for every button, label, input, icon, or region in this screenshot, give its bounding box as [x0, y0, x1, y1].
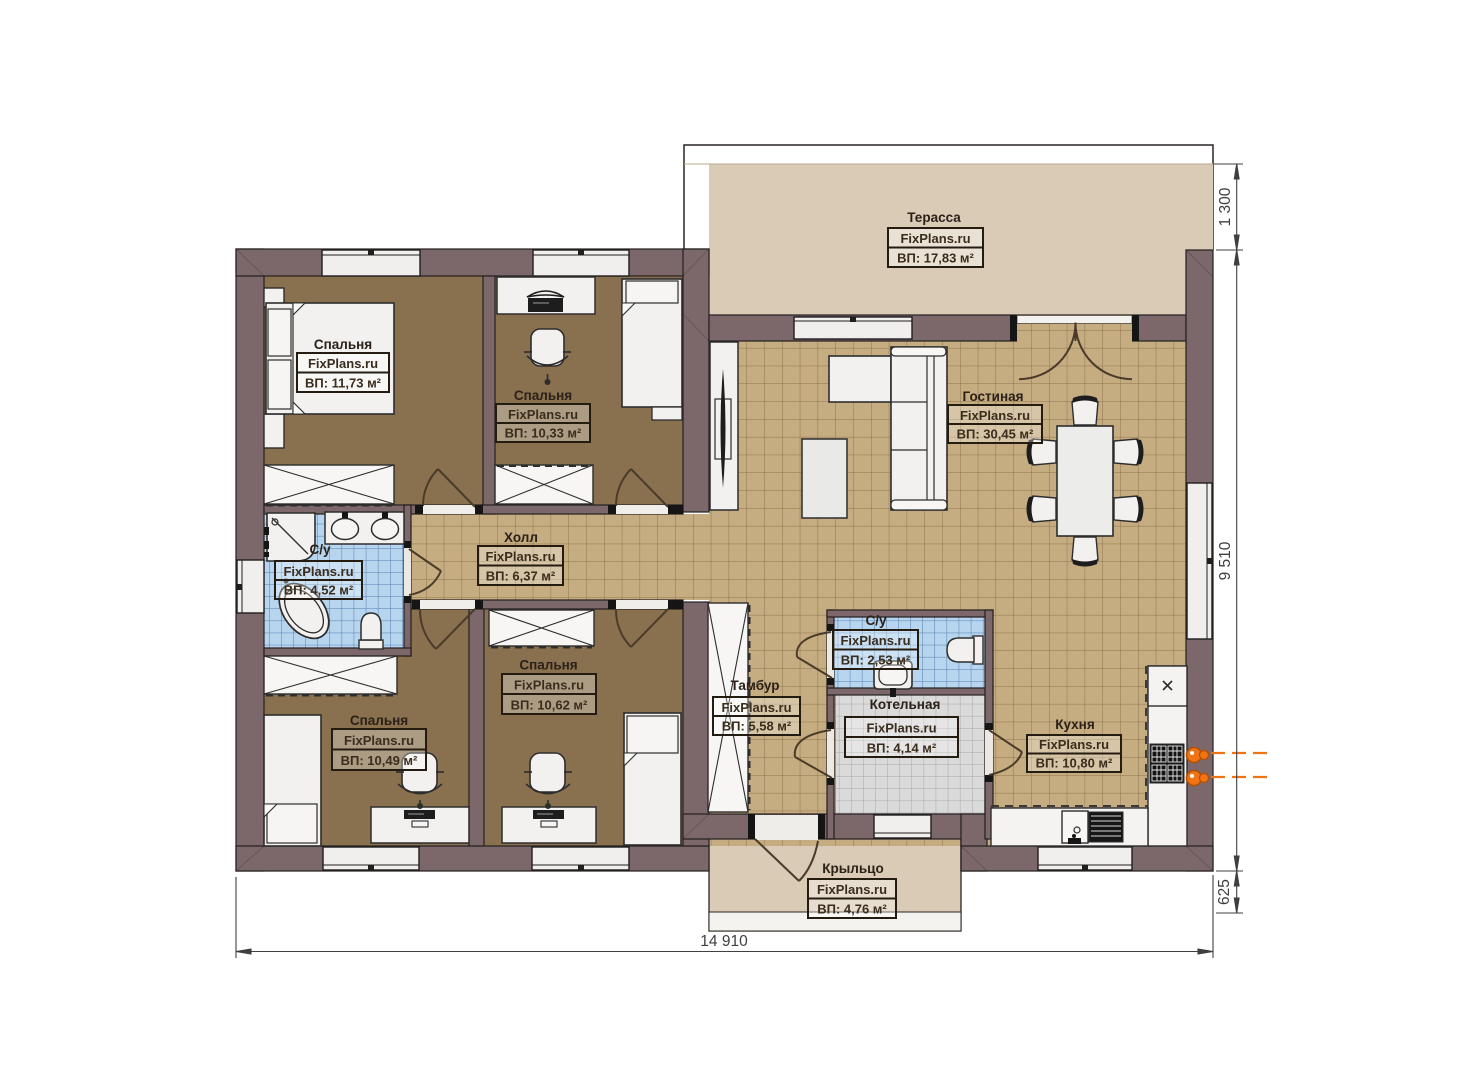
svg-text:ВП: 10,80 м²: ВП: 10,80 м²	[1036, 756, 1113, 771]
svg-text:ВП: 30,45 м²: ВП: 30,45 м²	[957, 427, 1034, 442]
svg-text:FixPlans.ru: FixPlans.ru	[721, 700, 791, 715]
svg-text:FixPlans.ru: FixPlans.ru	[960, 408, 1030, 423]
svg-text:FixPlans.ru: FixPlans.ru	[840, 633, 910, 648]
svg-text:ВП: 5,58 м²: ВП: 5,58 м²	[722, 719, 792, 734]
svg-text:Кухня: Кухня	[1055, 717, 1094, 732]
svg-text:Спальня: Спальня	[350, 713, 408, 728]
svg-text:Холл: Холл	[504, 530, 538, 545]
svg-text:С/у: С/у	[309, 542, 331, 557]
svg-text:FixPlans.ru: FixPlans.ru	[817, 882, 887, 897]
svg-text:14 910: 14 910	[700, 933, 748, 950]
svg-text:Крыльцо: Крыльцо	[822, 861, 883, 876]
svg-text:Спальня: Спальня	[314, 337, 372, 352]
svg-text:Спальня: Спальня	[519, 658, 577, 673]
svg-text:FixPlans.ru: FixPlans.ru	[344, 733, 414, 748]
svg-text:ВП: 10,62 м²: ВП: 10,62 м²	[511, 698, 588, 713]
svg-text:С/у: С/у	[865, 613, 887, 628]
svg-text:FixPlans.ru: FixPlans.ru	[308, 356, 378, 371]
svg-text:Котельная: Котельная	[870, 697, 941, 712]
svg-text:Гостиная: Гостиная	[962, 389, 1023, 404]
svg-text:FixPlans.ru: FixPlans.ru	[900, 231, 970, 246]
svg-text:ВП: 4,52 м²: ВП: 4,52 м²	[284, 583, 354, 598]
svg-text:Тамбур: Тамбур	[731, 678, 780, 693]
svg-text:Спальня: Спальня	[514, 388, 572, 403]
svg-text:FixPlans.ru: FixPlans.ru	[485, 549, 555, 564]
svg-text:FixPlans.ru: FixPlans.ru	[283, 564, 353, 579]
svg-text:FixPlans.ru: FixPlans.ru	[508, 407, 578, 422]
svg-text:ВП: 10,49 м²: ВП: 10,49 м²	[341, 753, 418, 768]
svg-text:9 510: 9 510	[1217, 541, 1234, 580]
svg-text:ВП: 4,76 м²: ВП: 4,76 м²	[817, 902, 887, 917]
svg-text:Терасса: Терасса	[907, 210, 961, 225]
svg-text:1 300: 1 300	[1217, 187, 1234, 226]
svg-text:625: 625	[1216, 879, 1233, 905]
svg-text:ВП: 17,83 м²: ВП: 17,83 м²	[897, 251, 974, 266]
svg-text:FixPlans.ru: FixPlans.ru	[514, 678, 584, 693]
svg-text:FixPlans.ru: FixPlans.ru	[866, 721, 936, 736]
svg-text:FixPlans.ru: FixPlans.ru	[1039, 737, 1109, 752]
svg-text:ВП: 4,14 м²: ВП: 4,14 м²	[867, 741, 937, 756]
svg-text:ВП: 11,73 м²: ВП: 11,73 м²	[305, 376, 382, 391]
svg-text:ВП: 10,33 м²: ВП: 10,33 м²	[505, 426, 582, 441]
svg-text:ВП: 2,53 м²: ВП: 2,53 м²	[841, 653, 911, 668]
svg-text:ВП: 6,37 м²: ВП: 6,37 м²	[486, 569, 556, 584]
